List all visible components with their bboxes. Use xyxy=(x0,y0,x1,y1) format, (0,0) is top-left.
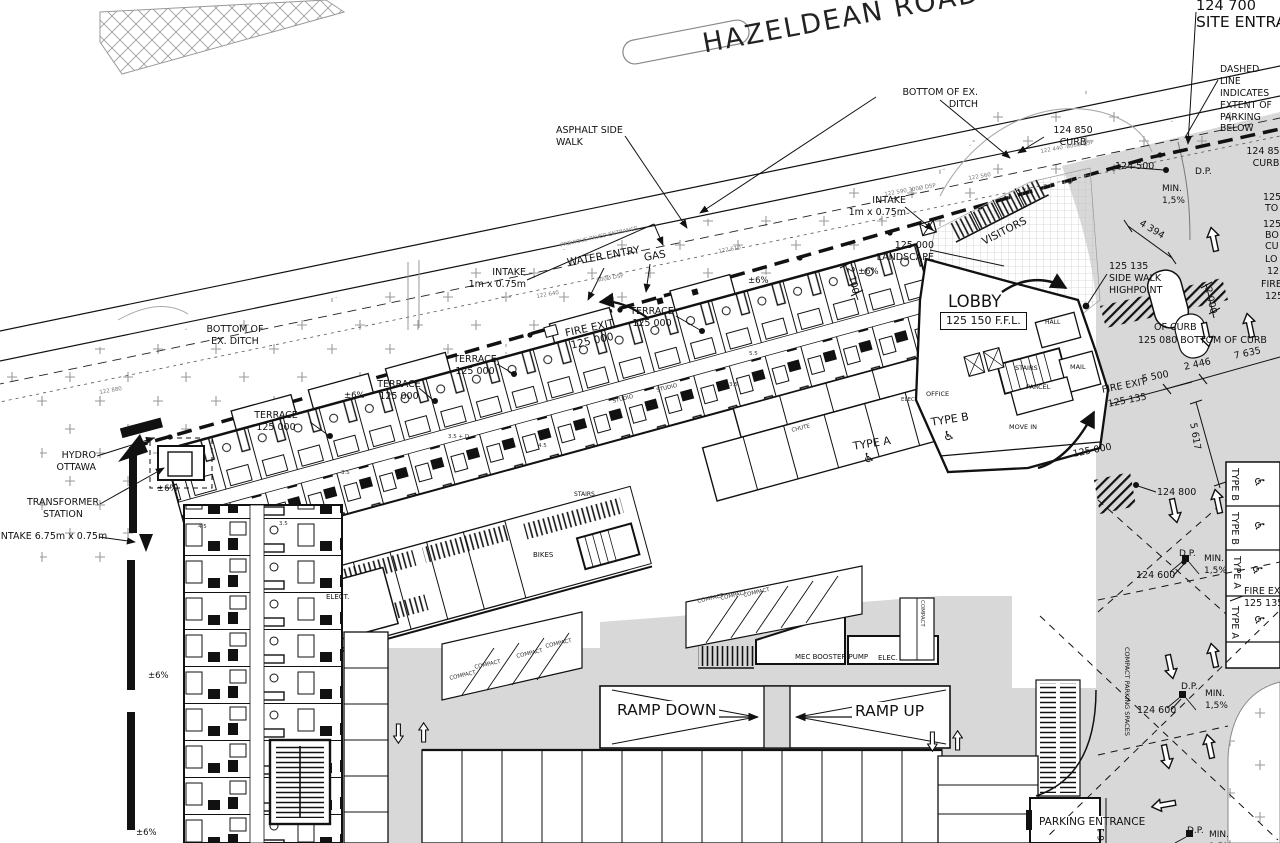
edge-fragment: TO xyxy=(1265,203,1278,215)
unit-size-label: 3.5 + D xyxy=(448,434,469,441)
curb-elevation-label-right: 124 850 CURB xyxy=(1237,146,1280,170)
terrace-elevation-label: TERRACE 125 000 xyxy=(440,354,510,378)
intake-label-a: INTAKE 1m x 0.75m xyxy=(818,195,906,219)
hydro-ottawa-label: HYDRO OTTAWA xyxy=(24,450,96,474)
unit-size-label: 5.5 xyxy=(749,351,758,358)
accessible-icon: ♿ xyxy=(1249,520,1266,532)
compact-stall-label: COMPACT xyxy=(918,600,925,627)
dashed-line-note: DASHED LINE INDICATES EXTENT OF PARKING … xyxy=(1220,64,1280,135)
edge-fragment: FIRE xyxy=(1261,279,1280,291)
unit-size-label: 3.5 xyxy=(341,470,350,477)
slope-label: ±6% xyxy=(148,671,169,682)
move-in-label: MOVE IN xyxy=(1009,423,1037,431)
lobby-label: LOBBY xyxy=(948,291,1001,312)
unit-size-label: 3.5 xyxy=(279,521,288,528)
min-slope-label: MIN. 1,5% xyxy=(1204,554,1227,577)
fire-exit-label-right: FIRE EXIT 125 135 xyxy=(1244,586,1280,610)
sidewalk-highpoint-label: 125 135 SIDE WALK HIGHPOINT xyxy=(1109,261,1162,297)
existing-hatch-area xyxy=(100,0,344,74)
slope-label: ±6% xyxy=(748,276,769,287)
drain-point-label: D.P. xyxy=(1187,826,1204,838)
site-entrance-label: SITE ENTRANCE xyxy=(1196,13,1280,33)
unit-size-label: 4.5 xyxy=(198,524,207,531)
accessible-icon: ♿ xyxy=(1247,564,1264,576)
elect-room-label: ELECT. xyxy=(326,593,349,602)
spot-elevation-124600: 124 600 xyxy=(1137,705,1176,717)
accessible-icon: ♿ xyxy=(862,450,876,468)
min-slope-label: MIN. 1,5% xyxy=(1162,184,1185,207)
bottom-ditch-label-top: BOTTOM OF EX. DITCH xyxy=(878,87,978,111)
slope-label: ±6% xyxy=(157,484,178,495)
ramp-up-label: RAMP UP xyxy=(852,702,927,722)
bikes-label: BIKES xyxy=(533,551,553,560)
bottom-of-curb-label: 125 080 BOTTOM OF CURB xyxy=(1138,335,1267,347)
edge-fragment: CU xyxy=(1265,241,1279,253)
ramp-down-label: RAMP DOWN xyxy=(614,701,719,721)
parcel-label: PARCEL xyxy=(1026,383,1050,391)
accessible-icon: ♿ xyxy=(1249,614,1266,626)
transformer-label: TRANSFORMER STATION xyxy=(24,497,102,521)
min-slope-label: MIN. 1,5% xyxy=(1209,830,1232,843)
landscape-elevation-label: 125 000 LANDSCAPE xyxy=(858,240,934,264)
min-slope-label: MIN. 1,5% xyxy=(1205,689,1228,712)
drain-point-label: D.P. xyxy=(1181,682,1198,694)
terrace-elevation-label: TERRACE 125 000 xyxy=(364,379,434,403)
stairs-label: STAIRS xyxy=(574,491,595,499)
slope-label: ±6% xyxy=(136,828,157,839)
type-b-stall-label-edge: TYPE B xyxy=(1228,512,1240,545)
intake-label-b: INTAKE 1m x 0.75m xyxy=(438,267,526,291)
edge-fragment: 12 xyxy=(1267,266,1279,278)
spot-elevation-124500: 124 500 xyxy=(1115,161,1154,173)
of-curb-fragment: OF CURB xyxy=(1154,322,1197,334)
accessible-icon: ♿ xyxy=(942,428,956,446)
spot-elevation-124600: 124 600 xyxy=(1136,570,1175,582)
unit-size-label: 3.5 xyxy=(729,382,738,389)
unit-size-label: 4.5 xyxy=(538,443,547,450)
terrace-elevation-label: TERRACE 125 000 xyxy=(617,306,687,330)
edge-fragment: LO xyxy=(1265,254,1277,266)
hall-label: HALL xyxy=(1045,319,1060,327)
type-a-stall-label-edge: TYPE A xyxy=(1228,606,1240,639)
elec-label: ELEC. xyxy=(901,397,917,404)
elec-room-label: ELEC. xyxy=(878,654,898,663)
slope-label: ±6% xyxy=(344,391,365,402)
edge-fragment: 125 xyxy=(1265,291,1280,303)
terrace-elevation-label: TERRACE 125 000 xyxy=(241,410,311,434)
ffl-elevation-box: 125 150 F.F.L. xyxy=(940,312,1027,330)
office-label: OFFICE xyxy=(926,390,949,398)
compact-parking-spaces-label: COMPACT PARKING SPACES xyxy=(1123,647,1131,736)
parking-entrance-label: PARKING ENTRANCE xyxy=(1036,816,1104,829)
slope-label: ±6% xyxy=(858,267,879,278)
spot-elevation-124800: 124 800 xyxy=(1157,487,1196,499)
intake-label-c: INTAKE 6.75m x 0.75m xyxy=(0,531,107,543)
mail-label: MAIL xyxy=(1070,363,1086,371)
asphalt-sidewalk-label: ASPHALT SIDE WALK xyxy=(556,125,623,149)
type-b-stall-label-edge: TYPE B xyxy=(1228,468,1240,501)
mec-booster-pump-label: MEC BOOSTER PUMP xyxy=(795,653,868,662)
bottom-ditch-label-left: BOTTOM OF EX. DITCH xyxy=(204,324,266,348)
drain-point-label: D.P. xyxy=(1195,167,1212,179)
site-plan-canvas: HAZELDEAN ROAD 124 700 SITE ENTRANCE DAS… xyxy=(0,0,1280,843)
drain-point-label: D.P. xyxy=(1179,549,1196,561)
stairs-label: STAIRS xyxy=(1015,364,1038,372)
type-a-stall-label-edge: TYPE A xyxy=(1230,556,1242,589)
accessible-icon: ♿ xyxy=(1249,476,1266,488)
